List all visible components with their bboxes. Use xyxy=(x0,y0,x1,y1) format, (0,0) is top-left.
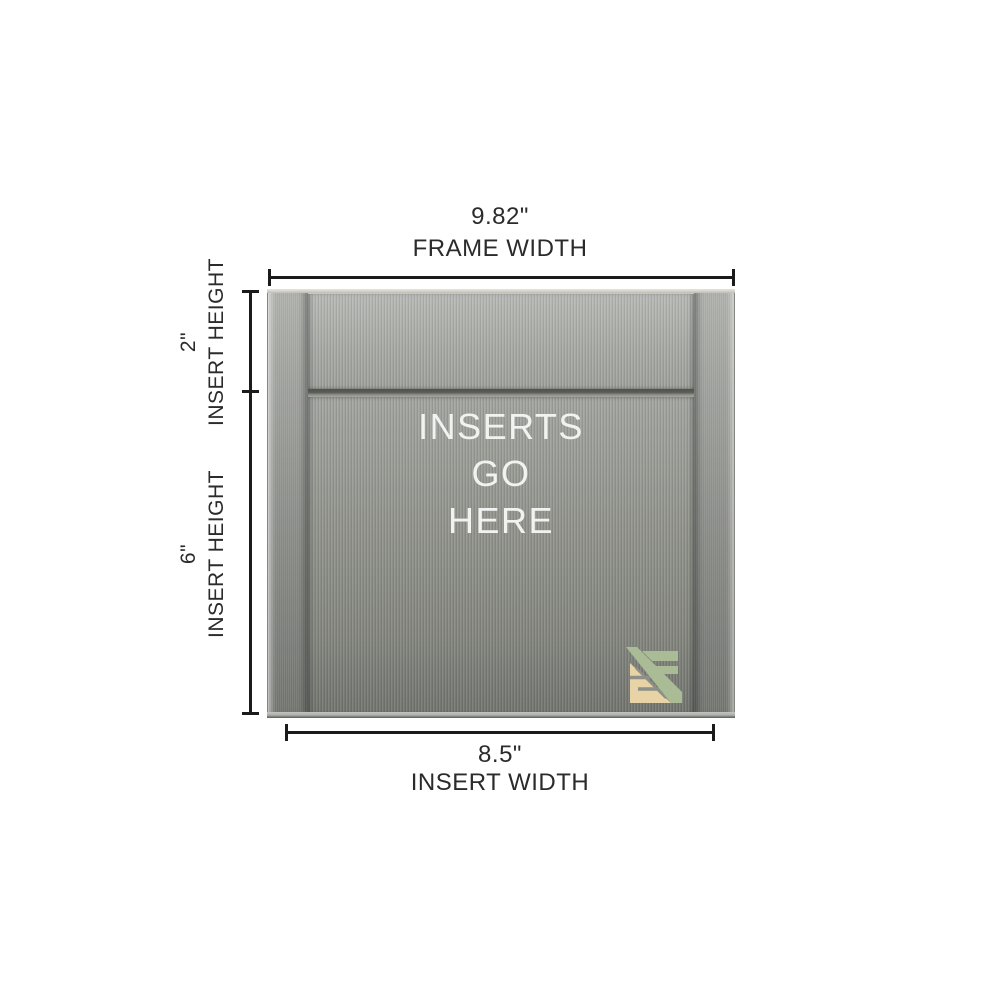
left-side-rail xyxy=(267,291,308,714)
divider-rail xyxy=(307,389,695,397)
insert-width-label: INSERT WIDTH xyxy=(0,769,1000,797)
top-insert-height-label: INSERT HEIGHT xyxy=(205,258,229,426)
insert-text-line: GO xyxy=(307,450,695,497)
insert-placeholder-text: INSERTS GO HERE xyxy=(307,397,695,544)
insert-height-dimension-line xyxy=(249,290,252,715)
sign-frame: INSERTS GO HERE xyxy=(267,289,735,718)
right-side-rail xyxy=(694,291,735,714)
insert-width-dimension-line xyxy=(285,731,715,734)
insert-text-line: INSERTS xyxy=(307,403,695,450)
frame-width-dimension-line xyxy=(268,276,735,279)
main-insert-panel: INSERTS GO HERE xyxy=(307,397,695,714)
frame-bottom-cap xyxy=(267,712,735,718)
frame-width-label: FRAME WIDTH xyxy=(0,235,1000,263)
product-dimension-diagram: 9.82" FRAME WIDTH 2" INSERT HEIGHT 6" IN… xyxy=(0,0,1000,1000)
insert-column: INSERTS GO HERE xyxy=(307,292,695,714)
insert-width-value: 8.5" xyxy=(0,741,1000,769)
sf-monogram-logo-icon xyxy=(626,647,682,703)
top-insert-panel xyxy=(307,292,695,389)
insert-text-line: HERE xyxy=(307,497,695,544)
top-insert-height-value: 2" xyxy=(177,332,201,352)
frame-top-cap xyxy=(267,289,735,293)
main-insert-height-value: 6" xyxy=(177,544,201,564)
divider-tick xyxy=(242,390,259,393)
main-insert-height-label: INSERT HEIGHT xyxy=(205,470,229,638)
frame-width-value: 9.82" xyxy=(0,203,1000,231)
